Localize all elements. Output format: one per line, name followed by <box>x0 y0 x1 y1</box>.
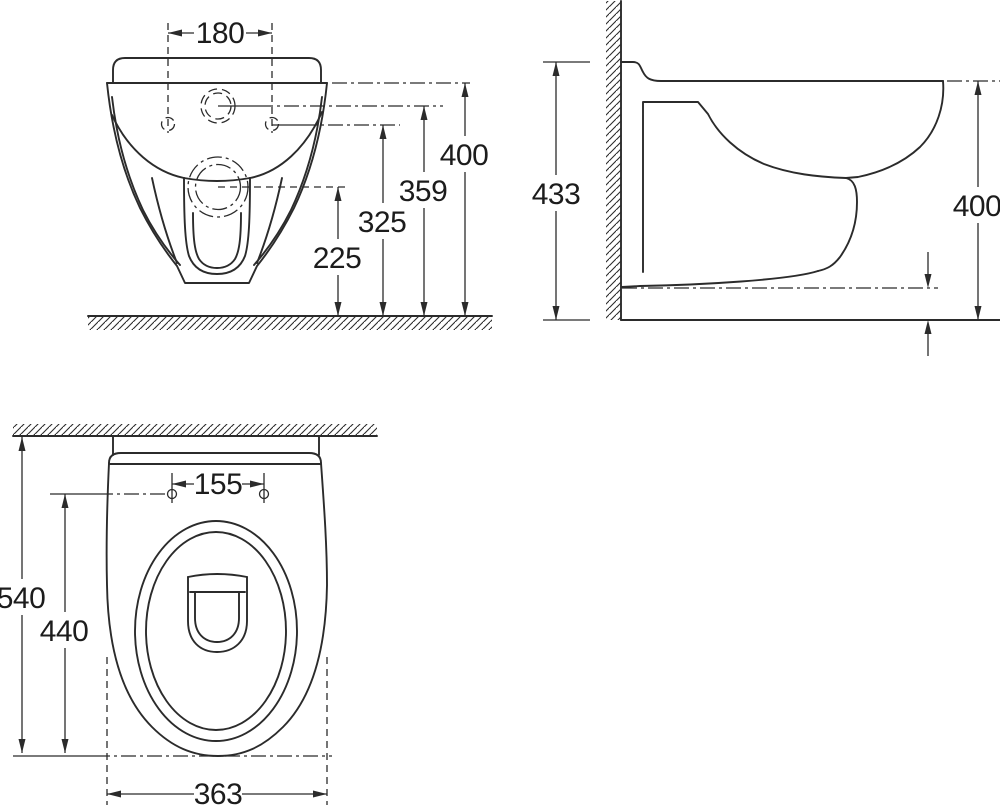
dim-side-overall-height: 433 <box>532 62 590 320</box>
dim-front-fixing-height: 325 <box>358 125 407 316</box>
front-view: 180 400 359 325 <box>88 17 492 330</box>
drawing-canvas: 180 400 359 325 <box>0 0 1000 808</box>
dim-label-433: 433 <box>532 178 581 211</box>
dim-label-359: 359 <box>399 175 448 208</box>
dim-front-hole-spacing: 180 <box>168 17 272 133</box>
dim-plan-width: 363 <box>107 657 327 808</box>
plan-view: 155 540 440 363 <box>0 424 377 808</box>
side-wall-hatch <box>606 1 621 320</box>
plan-drain-well <box>188 574 247 652</box>
dim-side-rim-height: 400 <box>947 81 1000 320</box>
dim-plan-fixing-spacing: 155 <box>172 468 264 503</box>
front-ground-hatch <box>88 317 492 330</box>
dim-label-363: 363 <box>194 778 243 808</box>
dim-label-front-400: 400 <box>440 139 489 172</box>
front-fixture-outline <box>107 58 327 283</box>
side-fixture-outline <box>621 62 943 287</box>
side-view: 433 400 <box>532 1 1000 356</box>
dim-label-540: 540 <box>0 582 45 615</box>
technical-drawing: 180 400 359 325 <box>0 0 1000 808</box>
dim-side-gap <box>925 252 932 356</box>
dim-label-155: 155 <box>194 468 243 501</box>
dim-label-225: 225 <box>313 242 362 275</box>
dim-plan-overall-depth: 540 <box>0 437 45 753</box>
dim-plan-bowl-depth: 440 <box>40 494 89 753</box>
dim-label-180: 180 <box>196 17 245 50</box>
dim-label-side-400: 400 <box>953 190 1000 223</box>
dim-label-325: 325 <box>358 206 407 239</box>
dim-label-440: 440 <box>40 615 89 648</box>
plan-wall-hatch <box>13 424 377 436</box>
dim-front-outlet-height: 225 <box>313 187 362 316</box>
